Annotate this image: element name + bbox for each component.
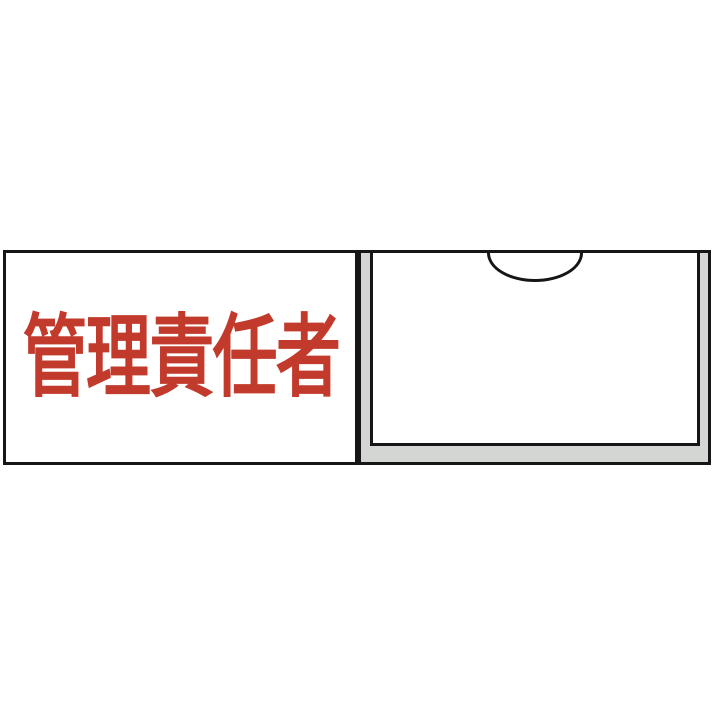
product-image: 管理責任者 <box>0 0 713 713</box>
name-plate: 管理責任者 <box>3 250 358 465</box>
thumb-notch <box>487 253 583 282</box>
card-holder-frame <box>358 250 711 465</box>
nameplate-sign: 管理責任者 <box>3 250 711 465</box>
card-pocket <box>370 253 700 446</box>
plate-label: 管理責任者 <box>22 313 339 403</box>
